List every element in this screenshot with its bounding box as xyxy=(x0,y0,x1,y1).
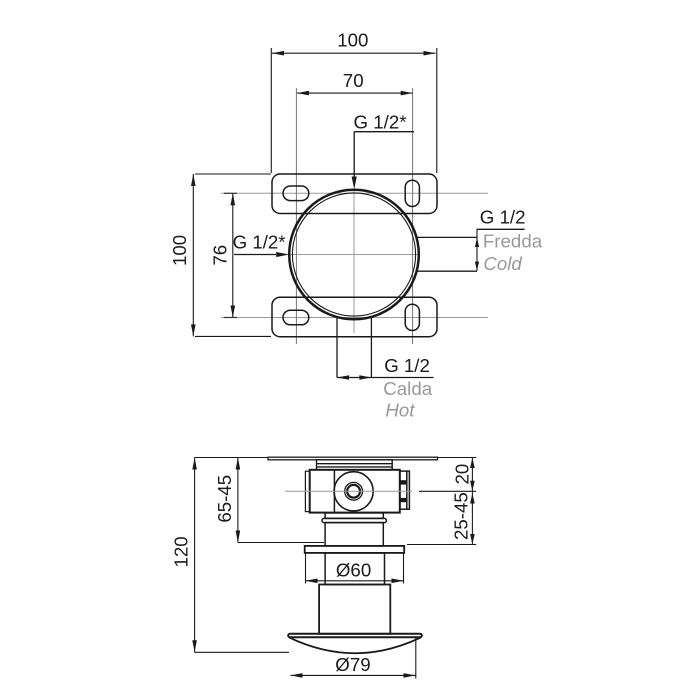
svg-text:76: 76 xyxy=(210,245,231,266)
svg-text:Ø60: Ø60 xyxy=(336,560,371,581)
svg-text:100: 100 xyxy=(169,235,190,266)
svg-text:Hot: Hot xyxy=(385,399,415,420)
svg-text:Fredda: Fredda xyxy=(483,231,543,252)
svg-text:100: 100 xyxy=(337,30,368,51)
svg-text:70: 70 xyxy=(343,70,364,91)
svg-text:G 1/2*: G 1/2* xyxy=(354,111,407,132)
svg-text:20: 20 xyxy=(452,464,473,485)
svg-text:G 1/2*: G 1/2* xyxy=(233,232,286,253)
svg-text:G 1/2: G 1/2 xyxy=(384,355,430,376)
svg-text:G 1/2: G 1/2 xyxy=(480,207,526,228)
svg-text:120: 120 xyxy=(171,536,192,567)
svg-text:Cold: Cold xyxy=(483,253,522,274)
svg-text:65-45: 65-45 xyxy=(214,475,235,523)
svg-text:Ø79: Ø79 xyxy=(335,654,370,675)
svg-text:25-45: 25-45 xyxy=(451,492,472,540)
svg-text:Calda: Calda xyxy=(383,378,432,399)
